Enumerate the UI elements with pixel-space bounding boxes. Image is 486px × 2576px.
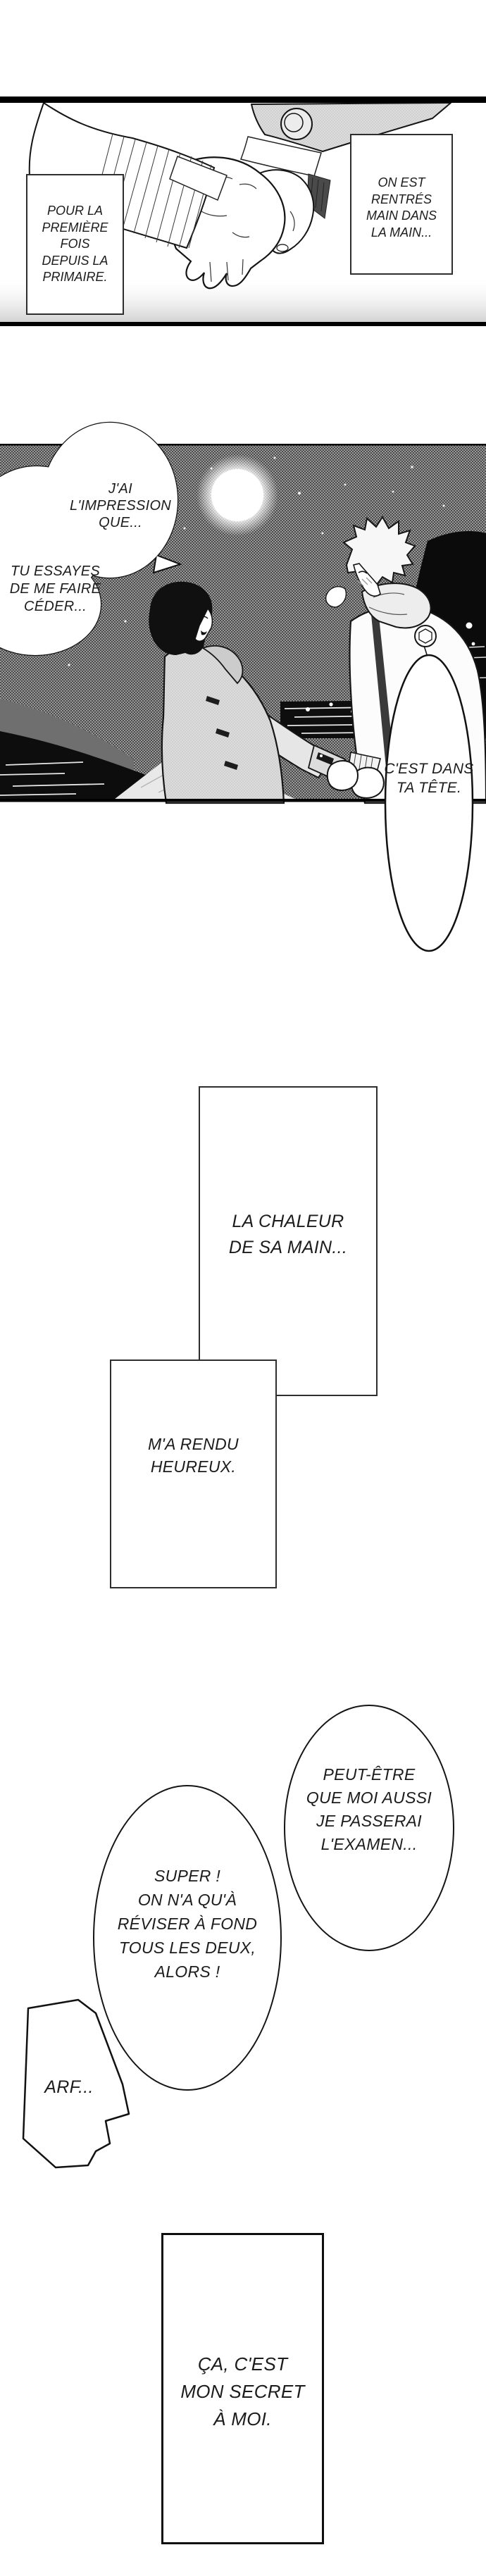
caption-line: DEPUIS LA: [27, 253, 123, 270]
caption-text-heureux: M'A RENDU HEUREUX.: [110, 1433, 277, 1478]
caption-line: LA MAIN...: [366, 225, 437, 242]
caption-line: POUR LA: [27, 203, 123, 220]
caption-line: PREMIÈRE FOIS: [27, 220, 123, 253]
bubble-text-super: SUPER ! ON N'A QU'À RÉVISER À FOND TOUS …: [93, 1864, 282, 1984]
caption-line: MAIN DANS: [366, 208, 437, 225]
caption-line: ON EST: [366, 175, 437, 192]
panel1-bottom-border: [0, 322, 486, 326]
caption-line: PRIMAIRE.: [27, 269, 123, 286]
bubble-text-arf: ARF...: [23, 2077, 115, 2098]
bubble-text-impression: J'AI L'IMPRESSION QUE...: [61, 480, 180, 531]
moon: [197, 454, 278, 536]
caption-box-premiere-fois: POUR LA PREMIÈRE FOIS DEPUIS LA PRIMAIRE…: [26, 174, 124, 315]
coat-button: [281, 108, 312, 139]
bubble-text-essayes: TU ESSAYES DE ME FAIRE CÉDER...: [4, 563, 106, 616]
speech-bubble-tete: [385, 655, 473, 951]
caption-text-chaleur: LA CHALEUR DE SA MAIN...: [199, 1209, 378, 1261]
caption-text-secret: ÇA, C'EST MON SECRET À MOI.: [161, 2351, 324, 2433]
caption-box-main-dans-la-main: ON EST RENTRÉS MAIN DANS LA MAIN...: [350, 134, 453, 275]
holding-hand: [328, 761, 358, 790]
manga-page: POUR LA PREMIÈRE FOIS DEPUIS LA PRIMAIRE…: [0, 0, 486, 2576]
caption-line: RENTRÉS: [366, 192, 437, 209]
bubble-text-examen: PEUT-ÊTRE QUE MOI AUSSI JE PASSERAI L'EX…: [284, 1763, 454, 1856]
panel1-top-border: [0, 97, 486, 103]
bubble-text-tete: C'EST DANS TA TÊTE.: [380, 759, 478, 797]
